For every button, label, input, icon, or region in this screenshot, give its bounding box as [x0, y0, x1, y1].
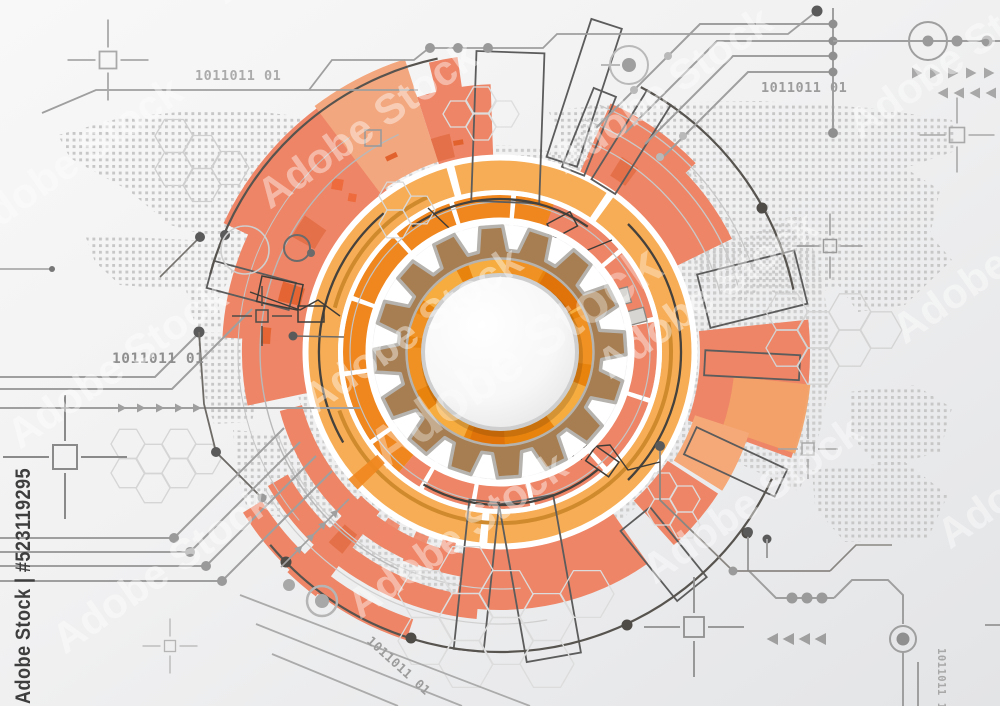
binary-code-top-left: 1011011 01	[195, 68, 281, 84]
trace-node-dot	[828, 128, 838, 138]
circuit-trace	[293, 336, 344, 337]
binary-code-bottom-right: 1011011 1	[935, 648, 947, 706]
binary-code-top-right: 1011011 01	[761, 80, 847, 96]
trace-node-dot	[283, 579, 295, 591]
orbit-node	[406, 633, 417, 644]
trace-node-dot	[897, 633, 910, 646]
trace-node-dot	[656, 153, 664, 161]
trace-node-dot	[289, 332, 298, 341]
trace-node-dot	[655, 441, 665, 451]
trace-node-dot	[49, 266, 55, 272]
trace-node-dot	[217, 576, 227, 586]
trace-node-dot	[483, 43, 493, 53]
tech-abstract-illustration: 1011011 01 1011011 01 1011011 01 1011011…	[0, 0, 1000, 706]
trace-node-dot	[817, 593, 828, 604]
trace-node-dot	[829, 68, 838, 77]
trace-node-dot	[787, 593, 798, 604]
trace-node-dot	[829, 52, 838, 61]
trace-node-dot	[812, 6, 823, 17]
orbit-node	[622, 620, 633, 631]
trace-node-dot	[622, 58, 636, 72]
trace-node-dot	[315, 594, 329, 608]
trace-node-dot	[211, 447, 221, 457]
trace-node-dot	[195, 232, 205, 242]
orbit-node	[757, 203, 768, 214]
watermark-stock-id: Adobe Stock | #523119295	[12, 468, 35, 704]
trace-node-dot	[679, 132, 687, 140]
tech-background-scene: 1011011 01 1011011 01 1011011 01 1011011…	[0, 0, 1000, 706]
trace-node-dot	[802, 593, 813, 604]
trace-node-dot	[829, 20, 838, 29]
trace-node-dot	[307, 249, 315, 257]
trace-node-dot	[729, 567, 738, 576]
